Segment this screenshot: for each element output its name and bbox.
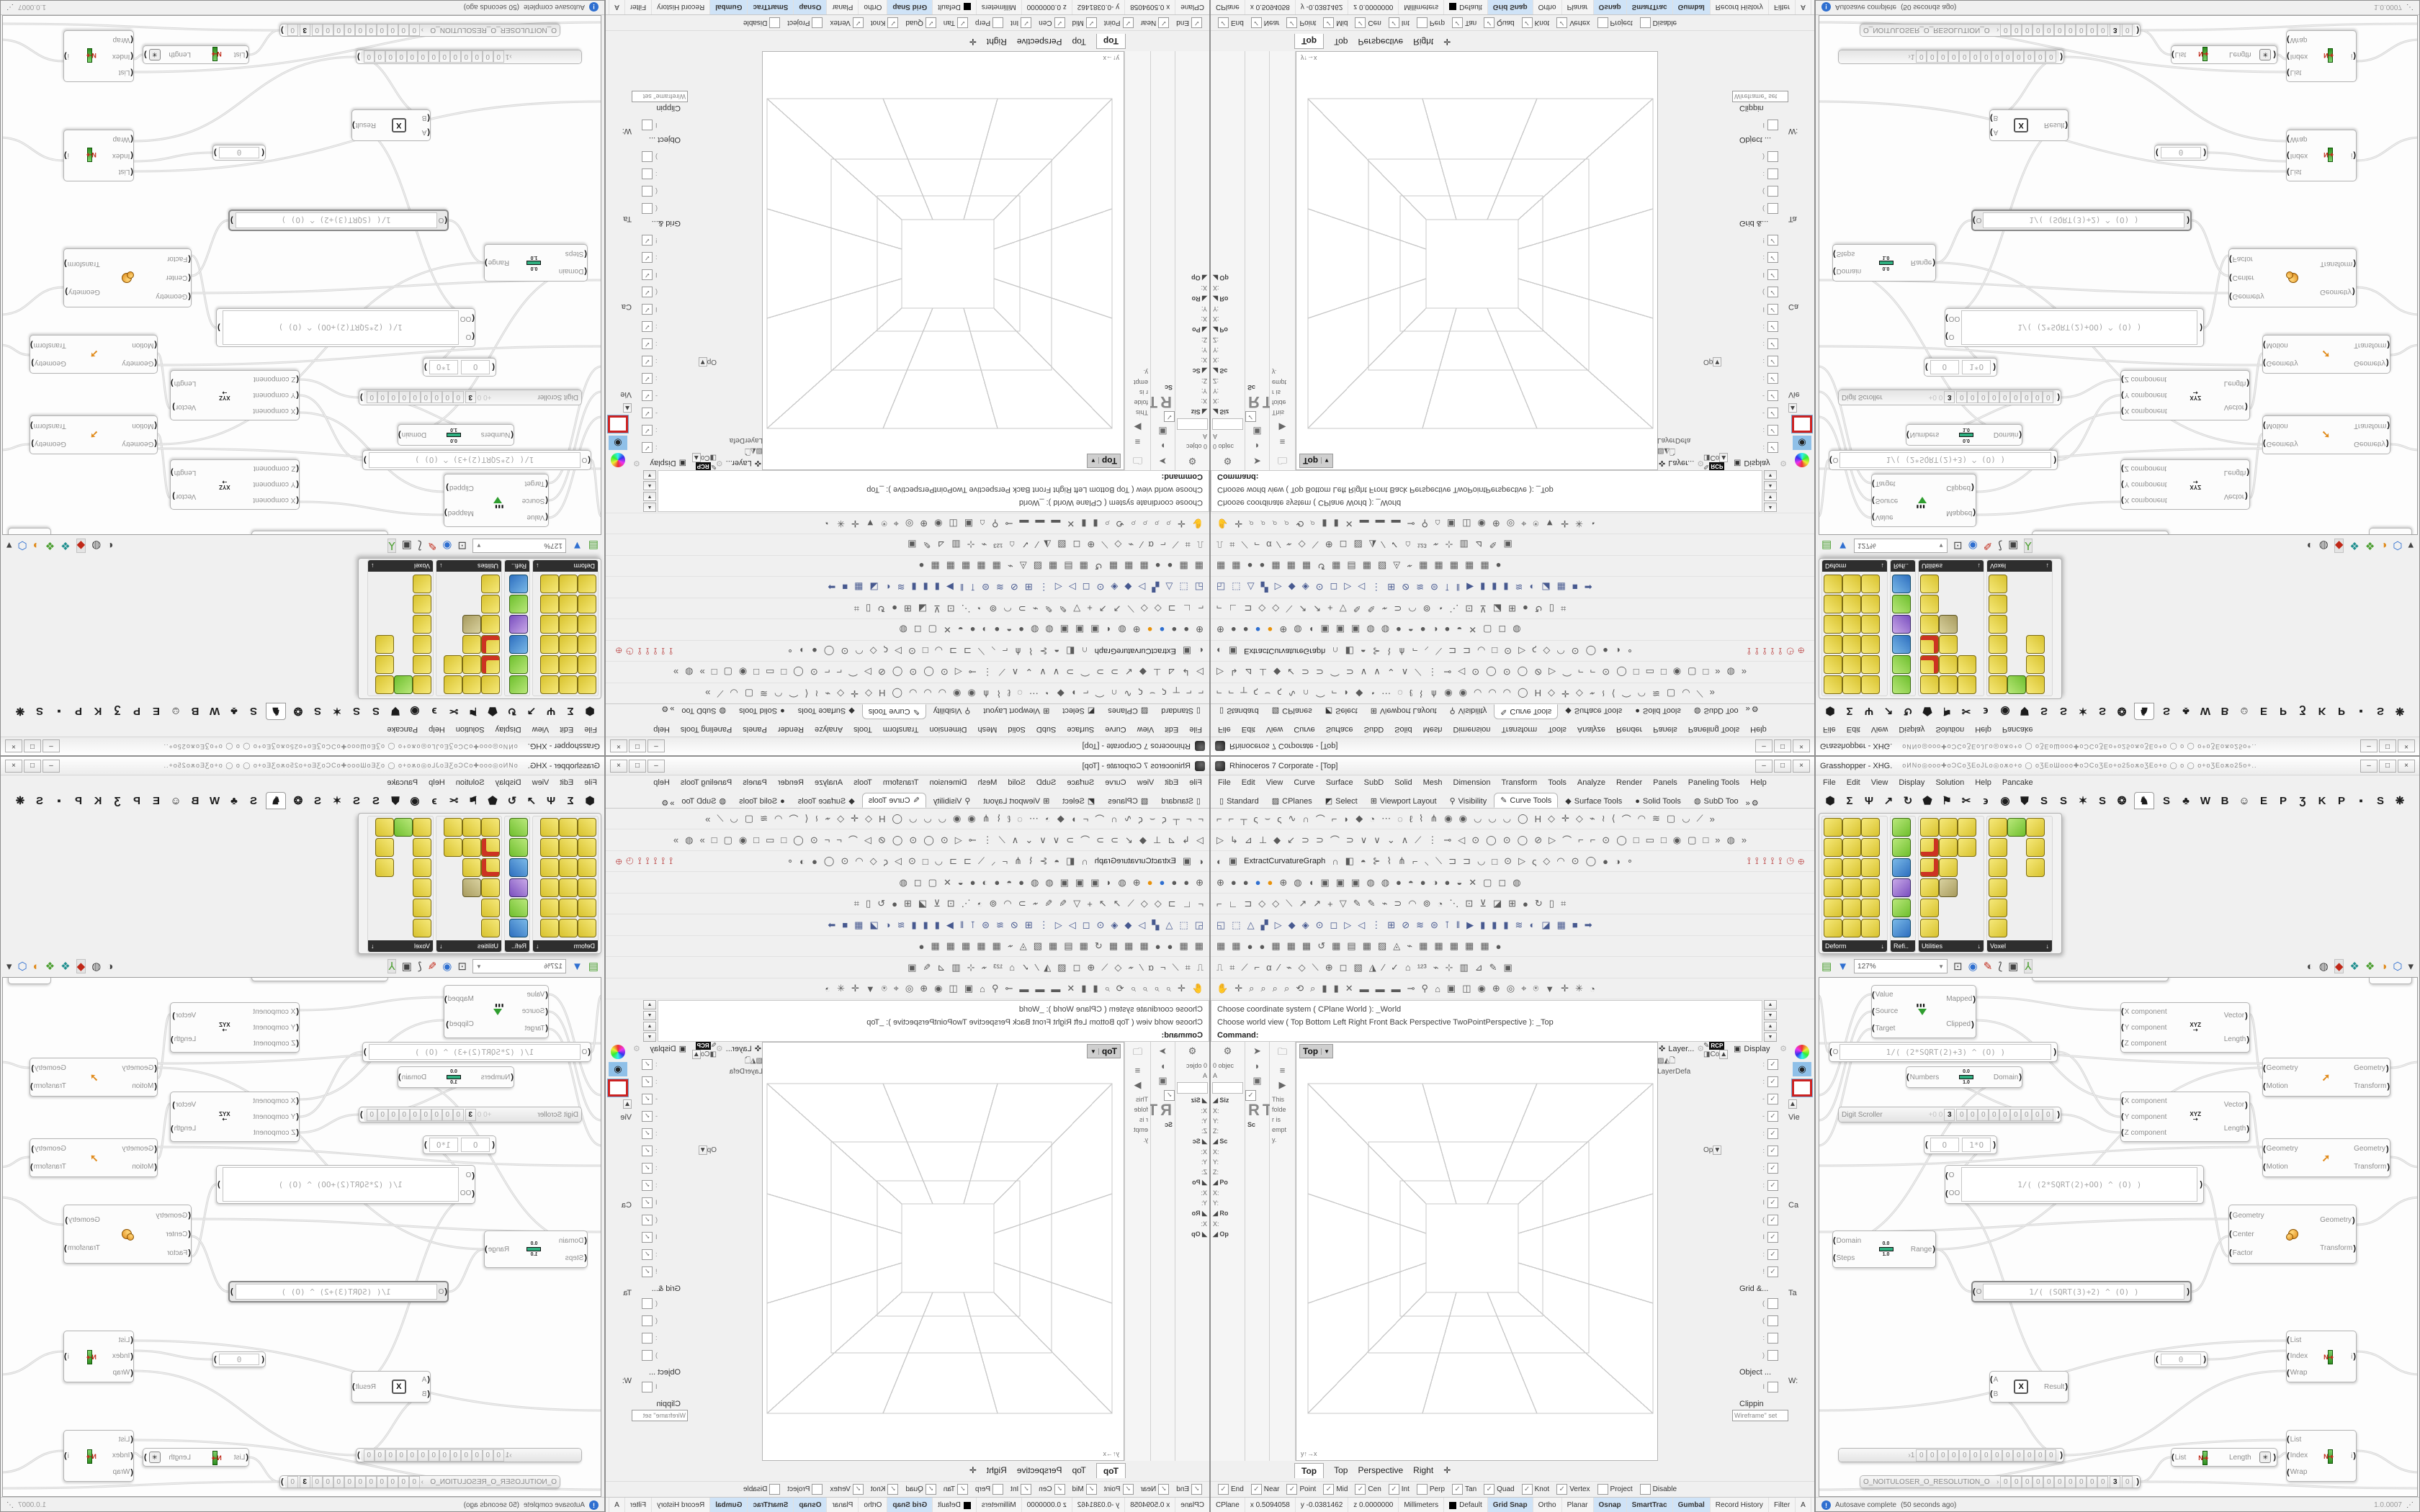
toolbar-icon[interactable]: ◉	[1673, 667, 1681, 678]
toolbar-icon[interactable]: ⌄	[1387, 834, 1395, 846]
checkbox-checked[interactable]	[887, 1484, 898, 1495]
component-icon[interactable]	[1920, 635, 1939, 654]
status-cell-osnap[interactable]: Osnap	[793, 1498, 826, 1512]
remap-numbers-component[interactable]: (Value(Source(TargetMapped)Clipped)	[444, 985, 549, 1038]
toolbar-icon[interactable]: ⌂	[1009, 962, 1015, 973]
plugin-tab-icon[interactable]: ↻	[1901, 705, 1915, 718]
digit-cell[interactable]: 0	[2021, 392, 2032, 404]
port-out[interactable]: Geometry)	[64, 1216, 100, 1224]
toolbar-icon[interactable]: ⌇	[1419, 688, 1423, 699]
status-cell-smarttrac[interactable]: SmartTrac	[747, 1498, 793, 1512]
digit-cell[interactable]: 0	[2002, 51, 2013, 63]
digit-cell[interactable]: 0	[2097, 1476, 2108, 1488]
digit-cell[interactable]: 0	[377, 392, 388, 404]
preview-red-gem-icon[interactable]: ◆	[76, 959, 86, 973]
status-cell-millimeters[interactable]: Millimeters	[1399, 0, 1444, 14]
plugin-tab-icon[interactable]: S	[246, 795, 261, 807]
status-cell-ortho[interactable]: Ortho	[858, 1498, 887, 1512]
component-icon[interactable]	[1824, 615, 1842, 634]
port-out[interactable]: Transform)	[2320, 260, 2356, 268]
toolbar-icon[interactable]: ⊸	[1407, 518, 1415, 529]
toolbar-icon[interactable]: ◇	[1114, 962, 1121, 973]
plugin-tab-icon[interactable]: ❋	[2393, 705, 2407, 718]
component-icon[interactable]	[509, 595, 528, 613]
checkbox-unchecked[interactable]	[1767, 186, 1778, 197]
toolbar-icon[interactable]: ◡	[1682, 813, 1690, 824]
axis-icon[interactable]: ⟟	[1747, 855, 1755, 866]
checkbox-checked[interactable]	[1218, 1484, 1229, 1495]
port-in[interactable]: (Numbers	[481, 1074, 514, 1081]
toolbar-icon[interactable]: ≋	[1652, 813, 1660, 824]
toolbar-icon[interactable]: ◔	[1045, 688, 1051, 699]
toolbar-icon[interactable]: ⸜	[991, 855, 996, 868]
component-icon[interactable]	[509, 675, 528, 694]
viewport-tab-right[interactable]: Right	[987, 37, 1007, 47]
toolbar-icon[interactable]: ◯	[1616, 834, 1627, 846]
checkbox-checked[interactable]	[926, 1484, 936, 1495]
side-tab-vie[interactable]: Vie	[604, 390, 632, 399]
named-rectangle-icon[interactable]	[1792, 415, 1812, 433]
port-out[interactable]: Domain)	[398, 1074, 426, 1081]
component-icon[interactable]	[413, 899, 431, 917]
checkbox-checked[interactable]	[1191, 17, 1202, 28]
toolbar-icon[interactable]: ◆	[1355, 813, 1363, 824]
resize-grip-icon[interactable]: ⋰	[2406, 3, 2414, 11]
port-out[interactable]: Result)	[2044, 122, 2068, 130]
toolbar-icon[interactable]: ▦	[1480, 940, 1489, 952]
toolbar-icon[interactable]: ◆	[1057, 813, 1065, 824]
plugin-tab-icon[interactable]: ↗	[1881, 794, 1896, 807]
rcp-icon[interactable]: RCP	[1709, 462, 1724, 470]
toolbar-icon[interactable]: ●	[1018, 624, 1024, 635]
plugin-tab-icon[interactable]: Ʒ	[2295, 795, 2310, 807]
toolbar-icon[interactable]: ⌇	[1387, 855, 1391, 867]
digit-cell[interactable]: 0	[344, 1476, 355, 1488]
osnap-toggle-perp[interactable]: Perp	[975, 17, 1003, 28]
component-icon[interactable]	[1824, 675, 1842, 694]
toolbar-icon[interactable]: ⚲	[992, 518, 999, 529]
toolbar-icon[interactable]: ↻	[877, 603, 885, 614]
toolbar-icon[interactable]: ▣	[1090, 624, 1099, 636]
toolbar-icon[interactable]: ◯	[824, 645, 835, 657]
viewport-tab-perspective[interactable]: Perspective	[1358, 1465, 1403, 1475]
status-cell-y-0-0381462[interactable]: y -0.0381462	[1296, 1498, 1348, 1512]
zoom-extents-icon[interactable]: ⊡	[1953, 539, 1963, 552]
dropdown-arrow-icon[interactable]: ▾	[6, 539, 12, 552]
toolbar-tab-subd-too[interactable]: ◍SubD Too	[676, 794, 732, 808]
toolbar-icon[interactable]: ⟨	[1612, 813, 1615, 824]
component-icon[interactable]	[1920, 595, 1939, 613]
toolbar-icon[interactable]: ⊙	[941, 834, 949, 846]
toolbar-icon[interactable]: ⌄	[1025, 834, 1033, 846]
toolbar-icon[interactable]: ¹²³	[993, 539, 1003, 550]
checkbox-checked[interactable]	[1767, 1197, 1778, 1208]
palette-category-footer[interactable]: Deform↓	[1822, 560, 1887, 572]
component-icon[interactable]	[2026, 858, 2045, 877]
four-view-icon[interactable]: ✛	[969, 37, 977, 47]
port-in[interactable]: (X component	[253, 408, 299, 415]
toolbar-icon[interactable]: ⊹	[967, 539, 975, 551]
checkbox-unchecked[interactable]	[1767, 204, 1778, 215]
minimize-button[interactable]: –	[2360, 760, 2378, 773]
toolbar-icon[interactable]: ⊞	[1387, 919, 1395, 931]
toolbar-icon[interactable]: ▦	[1124, 940, 1133, 952]
status-cell-x-0-5094058[interactable]: x 0.5094058	[1124, 1498, 1175, 1512]
osnap-toggle-project[interactable]: Project	[787, 1484, 823, 1495]
digit-cell[interactable]: 0	[421, 1109, 431, 1121]
expression-component-selected[interactable]: (O1/( (SQRT(3)+2) ^ (O) ))	[228, 1281, 449, 1302]
move-component[interactable]: (Geometry(Motion➚Geometry)Transform)	[2262, 1058, 2390, 1097]
toolbar-icon[interactable]: ⌐	[1332, 814, 1337, 824]
side-tab-ca[interactable]: Ca	[604, 302, 632, 311]
palette-category-footer[interactable]: Utilities↓	[1919, 560, 1984, 572]
toolbar-icon[interactable]: ◍	[685, 667, 693, 678]
component-icon[interactable]	[540, 675, 559, 694]
digit-cell[interactable]: 0	[453, 1109, 464, 1121]
port-in[interactable]: (Wrap	[2287, 1468, 2308, 1476]
palette-category-arrow[interactable]: ↓	[536, 562, 539, 570]
toolbar-icon[interactable]: ⋯	[1381, 688, 1391, 699]
toolbar-icon[interactable]: ◯	[923, 667, 934, 678]
digit-cell[interactable]: 0	[344, 24, 355, 36]
axes-widget-icon[interactable]: ⅄	[387, 539, 395, 553]
port-out[interactable]: i)	[64, 1353, 69, 1361]
toolbar-icon[interactable]: ⌐	[1160, 962, 1166, 973]
toolbar-icon[interactable]: ✓	[1021, 539, 1029, 551]
toolbar-icon[interactable]: ⊚	[1423, 603, 1431, 614]
plugin-tab-icon[interactable]: S	[2095, 706, 2110, 718]
rhino-menu-item[interactable]: Curve	[1105, 778, 1126, 787]
component-icon[interactable]	[1920, 818, 1939, 837]
toolbar-icon[interactable]: ⌕	[1273, 983, 1278, 994]
osnap-toggle-disable[interactable]: Disable	[743, 17, 780, 28]
side-tab-vie[interactable]: Vie	[1788, 1113, 1816, 1122]
panel-icon[interactable]: ➤	[1151, 1045, 1175, 1057]
toolbar-icon[interactable]: ◇	[1299, 962, 1306, 973]
mesh-orange-icon[interactable]: ◑	[2380, 540, 2387, 552]
grasshopper-canvas[interactable]: (Value(Source(TargetMapped)Clipped)(X co…	[2, 15, 601, 535]
checkbox-unchecked[interactable]	[642, 186, 653, 197]
checkbox-checked[interactable]	[1767, 235, 1778, 246]
scroll-up-button[interactable]: ▲	[692, 453, 701, 462]
pencil-icon[interactable]: ✎	[1703, 462, 1709, 470]
toolbar-icon[interactable]: ⌁	[825, 813, 830, 824]
checkbox-unchecked[interactable]	[1597, 1484, 1608, 1495]
port-in[interactable]: (O	[1829, 456, 1838, 464]
plugin-tab-icon[interactable]: Σ	[563, 706, 578, 718]
toolbar-icon[interactable]: ∿	[1124, 688, 1132, 699]
port-out[interactable]: Range)	[1911, 259, 1935, 267]
plugin-tab-icon[interactable]: ↗	[524, 705, 539, 718]
toolbar-icon[interactable]: ⸜	[1425, 855, 1430, 868]
toolbar-icon[interactable]: ⋔	[1398, 855, 1406, 867]
component-icon[interactable]	[375, 655, 394, 674]
plugin-tab-icon[interactable]: ϶	[1978, 795, 1993, 807]
plugin-tab-icon[interactable]: ϶	[1978, 706, 1993, 718]
sketch-pen-icon[interactable]: ✎	[428, 960, 437, 973]
toolbar-icon[interactable]: ◈	[1302, 919, 1309, 931]
status-cell-cplane[interactable]: CPlane	[1211, 0, 1245, 14]
toolbar-icon[interactable]: ς	[1162, 688, 1166, 699]
toolbar-icon[interactable]: ∨	[1373, 667, 1381, 678]
digit-cell[interactable]: 0	[2043, 1109, 2053, 1121]
rhino-menu-item[interactable]: Transform	[1502, 778, 1538, 787]
digit-cell[interactable]: 0	[461, 51, 472, 63]
toolbar-tab-viewport-layout[interactable]: ⊞Viewport Layout	[1365, 704, 1443, 718]
component-icon[interactable]	[509, 655, 528, 674]
new-layer-icon[interactable]: 🗋	[1670, 1057, 1675, 1065]
toolbar-icon[interactable]: ▦	[1109, 940, 1118, 952]
toolbar-icon[interactable]: ◓	[1006, 877, 1012, 888]
toolbar-icon[interactable]: ⊕	[1492, 518, 1500, 529]
color-wheel-icon[interactable]	[611, 1045, 625, 1059]
slider-active-digit[interactable]: 3	[300, 24, 310, 36]
component-icon[interactable]	[578, 575, 596, 593]
section-header[interactable]: ◢ Siz	[1175, 1095, 1209, 1106]
toolbar-icon[interactable]: ⊙	[810, 667, 818, 678]
toolbar-icon[interactable]: ⋮	[1371, 919, 1381, 931]
toolbar-icon[interactable]: ●	[1168, 561, 1173, 572]
checkbox-checked[interactable]	[642, 1076, 653, 1087]
toolbar-icon[interactable]: ⊞	[1025, 919, 1033, 931]
checkbox-checked[interactable]	[1767, 305, 1778, 315]
toolbar-icon[interactable]: ⋔	[982, 688, 990, 699]
toolbar-icon[interactable]: ▦	[1080, 940, 1088, 952]
toolbar-icon[interactable]: ≋	[996, 919, 1004, 931]
port-in[interactable]: (Steps	[1833, 1254, 1861, 1262]
toolbar-icon[interactable]: ▢	[1688, 834, 1696, 846]
port-in[interactable]: (List	[2172, 51, 2186, 59]
palette-category-footer[interactable]: Refi..	[505, 560, 529, 572]
checkbox-unchecked[interactable]	[1640, 1484, 1651, 1495]
toolbar-icon[interactable]: ◡	[730, 688, 738, 699]
component-icon[interactable]	[578, 838, 596, 857]
osnap-toggle-int[interactable]: Int	[1010, 1484, 1031, 1495]
port-in[interactable]: (X component	[2121, 497, 2167, 505]
toolbar-tab-visibility[interactable]: ⚲Visibility	[1444, 794, 1493, 808]
checkbox-unchecked[interactable]	[642, 204, 653, 215]
toolbar-icon[interactable]: ⚲	[1422, 983, 1429, 994]
digit-cell[interactable]: 0	[429, 51, 439, 63]
component-icon[interactable]	[1920, 899, 1939, 917]
toolbar-icon[interactable]: □	[1661, 667, 1667, 678]
checkbox-checked[interactable]	[1191, 1484, 1202, 1495]
toolbar-icon[interactable]: ◁	[1055, 919, 1062, 931]
toolbar-icon[interactable]: ⊘	[1010, 919, 1018, 931]
toolbar-icon[interactable]: ◡	[938, 688, 946, 699]
digit-cell[interactable]: 0	[333, 1476, 344, 1488]
component-icon[interactable]	[578, 818, 596, 837]
plugin-tab-icon[interactable]: P	[2276, 706, 2290, 718]
digit-cell[interactable]: 0	[418, 1449, 429, 1462]
toolbar-icon[interactable]: ▮	[1093, 983, 1098, 994]
toolbar-icon[interactable]: ⋱	[1449, 898, 1458, 909]
toolbar-icon[interactable]: ◎	[1507, 983, 1515, 994]
toolbar-icon[interactable]: ◠	[1003, 898, 1011, 909]
toolbar-icon[interactable]: ◍	[1512, 877, 1520, 888]
toolbar-icon[interactable]: ⌕	[1166, 518, 1171, 529]
toolbar-icon[interactable]: ▣	[907, 962, 916, 973]
toolbar-icon[interactable]: ⌐	[1216, 688, 1222, 699]
checkbox[interactable]	[1164, 411, 1175, 422]
named-view-icon[interactable]: ◭	[1664, 447, 1670, 455]
toolbar-icon[interactable]: ■	[1572, 919, 1578, 930]
digit-cell[interactable]: 0	[2076, 24, 2087, 36]
port-in[interactable]: (Source	[522, 497, 548, 505]
axis-icon[interactable]: ⊕	[611, 646, 622, 657]
axis-icon[interactable]: ⟟	[1763, 646, 1771, 657]
toolbar-icon[interactable]: ⚲	[1422, 518, 1429, 529]
toolbar-icon[interactable]: ◠	[1408, 898, 1416, 909]
toolbar-icon[interactable]: ●	[1231, 624, 1237, 635]
expression-component[interactable]: (O1/( (2*SQRT(2)+3) ^ (O) ))	[1829, 450, 2058, 470]
toolbar-icon[interactable]: ⍟	[1533, 983, 1538, 994]
checkbox-checked[interactable]	[642, 1059, 653, 1070]
plugin-tab-icon[interactable]: Ʒ	[110, 706, 125, 718]
toolbar-icon[interactable]: ⊙	[1097, 919, 1105, 931]
side-tab-w[interactable]: W:	[604, 1377, 632, 1385]
port-in[interactable]: (Index	[2287, 152, 2308, 160]
osnap-toggle-int[interactable]: Int	[1389, 17, 1410, 28]
toolbar-icon[interactable]: ▽	[1073, 603, 1080, 614]
toolbar-icon[interactable]: ⌕	[1260, 983, 1265, 994]
component-icon[interactable]	[578, 878, 596, 897]
command-scrollbar[interactable]: ▲▼▲▼	[643, 470, 656, 512]
port-in[interactable]: (Center	[156, 274, 191, 282]
toolbar-icon[interactable]: ◍	[1045, 877, 1053, 888]
preview-shaded-icon[interactable]: ◐	[107, 960, 113, 973]
toolbar-icon[interactable]: ◗	[1343, 688, 1349, 699]
component-icon[interactable]	[1861, 655, 1880, 674]
port-out[interactable]: Geometry)	[30, 440, 66, 448]
digit-cell[interactable]: 0	[2033, 1476, 2043, 1488]
toolbar-icon[interactable]: ℓ	[1008, 814, 1010, 824]
port-in[interactable]: (A	[1990, 1376, 1998, 1384]
toolbar-icon[interactable]: ▢	[745, 813, 753, 824]
toolbar-icon[interactable]: ◍	[1727, 834, 1735, 846]
checkbox-checked[interactable]	[1452, 17, 1463, 28]
toolbar-icon[interactable]: ⊹	[1446, 539, 1453, 551]
checkbox-checked[interactable]	[1767, 443, 1778, 454]
named-view-icon[interactable]: ◭	[1664, 1057, 1670, 1065]
hidden-component[interactable]	[251, 977, 388, 981]
toolbar-icon[interactable]: ⌒	[1622, 687, 1631, 701]
grasshopper-menu-item[interactable]: Edit	[560, 725, 573, 734]
toolbar-icon[interactable]: ▯	[866, 603, 871, 614]
toolbar-icon[interactable]: ⌣	[1149, 813, 1156, 824]
port-out[interactable]: Vector)	[2224, 1012, 2249, 1020]
toolbar-icon[interactable]: ⌕	[1105, 983, 1110, 994]
port-in[interactable]: (List	[2287, 1436, 2308, 1444]
side-tab-vie[interactable]: Vie	[604, 1113, 632, 1122]
axis-icon[interactable]: ⟟	[642, 646, 650, 657]
toolbar-icon[interactable]: ▦	[1195, 560, 1204, 572]
rhino-menu-item[interactable]: Help	[653, 778, 670, 787]
toolbar-icon[interactable]: ◯	[1518, 667, 1528, 678]
component-icon[interactable]	[1824, 838, 1842, 857]
palette-category-arrow[interactable]: ↓	[439, 942, 443, 950]
toolbar-icon[interactable]: ⊃	[1394, 603, 1402, 614]
port-in[interactable]: (List	[2287, 68, 2308, 76]
osnap-toggle-near[interactable]: Near	[1141, 1484, 1170, 1495]
toolbar-icon[interactable]: ✛	[1561, 688, 1569, 699]
digit-cell[interactable]: 0	[398, 24, 409, 36]
scale-component[interactable]: (Geometry(Center(FactorGeometry)Transfor…	[2228, 1205, 2357, 1264]
axis-icon[interactable]: ◷	[1786, 646, 1798, 657]
toolbar-icon[interactable]: ◇	[1141, 898, 1148, 909]
component-icon[interactable]	[375, 635, 394, 654]
plugin-tab-icon[interactable]: P	[71, 706, 86, 718]
port-in[interactable]: (Factor	[2229, 1249, 2264, 1257]
osnap-toggle-int[interactable]: Int	[1010, 17, 1031, 28]
list-item-component[interactable]: (List(Index(WrapN➜i)	[2286, 130, 2357, 181]
status-cell-x-0-5094058[interactable]: x 0.5094058	[1245, 0, 1296, 14]
expression-component[interactable]: (O1/( (2*SQRT(2)+3) ^ (O) ))	[362, 450, 591, 470]
plugin-tab-icon[interactable]: E	[2257, 795, 2271, 807]
scroll-down-button[interactable]: ▼	[699, 1146, 707, 1155]
mesh-green-icon[interactable]: ❖	[45, 539, 55, 552]
checkbox-checked[interactable]	[1556, 1484, 1567, 1495]
viewport-top[interactable]: Top▼ y↑→x	[762, 51, 1124, 470]
component-icon[interactable]	[413, 575, 431, 593]
component-icon[interactable]	[1861, 838, 1880, 857]
component-icon[interactable]	[1842, 595, 1861, 613]
plugin-tab-icon[interactable]: ⛊	[2017, 795, 2032, 807]
section-header[interactable]: ◢ Sc	[1175, 1136, 1209, 1147]
digit-scroller[interactable]: Digit Scroller+0 03000000000)	[359, 1107, 582, 1122]
toolbar-icon[interactable]: ◑	[982, 624, 988, 635]
toolbar-icon[interactable]: ∨	[1361, 667, 1368, 678]
toolbar-icon[interactable]: ↺	[1095, 560, 1103, 572]
toolbar-icon[interactable]: ς	[884, 646, 888, 657]
toolbar-icon[interactable]: ⋮	[983, 667, 992, 678]
toolbar-icon[interactable]: ⊹	[967, 962, 975, 973]
toolbar-icon[interactable]: ⊕	[1216, 877, 1224, 888]
panel-icon[interactable]: ≡	[1270, 1065, 1295, 1076]
toolbar-icon[interactable]: ➡	[828, 919, 835, 931]
plugin-tab-icon[interactable]: K	[91, 795, 105, 807]
port-out[interactable]: Geometry)	[2354, 440, 2390, 448]
status-cell-record-history[interactable]: Record History	[651, 1498, 709, 1512]
osnap-toggle-near[interactable]: Near	[1251, 1484, 1280, 1495]
gear-icon[interactable]: ⚙	[661, 704, 668, 714]
resize-grip-icon[interactable]: ⋰	[2406, 1501, 2414, 1509]
component-icon[interactable]	[578, 675, 596, 694]
toolbar-icon[interactable]: »	[1715, 834, 1720, 845]
plugin-tab-icon[interactable]: ⬢	[583, 705, 597, 718]
status-cell-y-0-0381462[interactable]: y -0.0381462	[1296, 0, 1348, 14]
toolbar-icon[interactable]: ▣	[1447, 518, 1456, 529]
mesh-green-icon[interactable]: ❖	[2365, 539, 2375, 552]
rhino-menu-item[interactable]: Transform	[1502, 725, 1538, 734]
toolbar-icon[interactable]: ⊕	[1216, 624, 1224, 636]
digit-cell[interactable]: 0	[1970, 51, 1981, 63]
plugin-tab-icon[interactable]: W	[2198, 706, 2213, 718]
port-out[interactable]: Length)	[171, 1035, 196, 1043]
digit-cell[interactable]: 0	[450, 1449, 461, 1462]
component-icon[interactable]	[559, 595, 578, 613]
toolbar-icon[interactable]: ◻	[1330, 582, 1338, 593]
toolbar-icon[interactable]: ◇	[1258, 603, 1265, 614]
osnap-toggle-vertex[interactable]: Vertex	[830, 1484, 863, 1495]
component-icon[interactable]	[509, 919, 528, 937]
toolbar-icon[interactable]: ✋	[1192, 518, 1204, 529]
toolbar-icon[interactable]: ⊥	[1259, 667, 1267, 678]
toolbar-icon[interactable]: ◑	[1433, 624, 1438, 635]
toolbar-icon[interactable]: ⌐	[1590, 667, 1596, 678]
grasshopper-menu-item[interactable]: Edit	[560, 778, 573, 787]
osnap-toggle-end[interactable]: End	[1218, 1484, 1244, 1495]
